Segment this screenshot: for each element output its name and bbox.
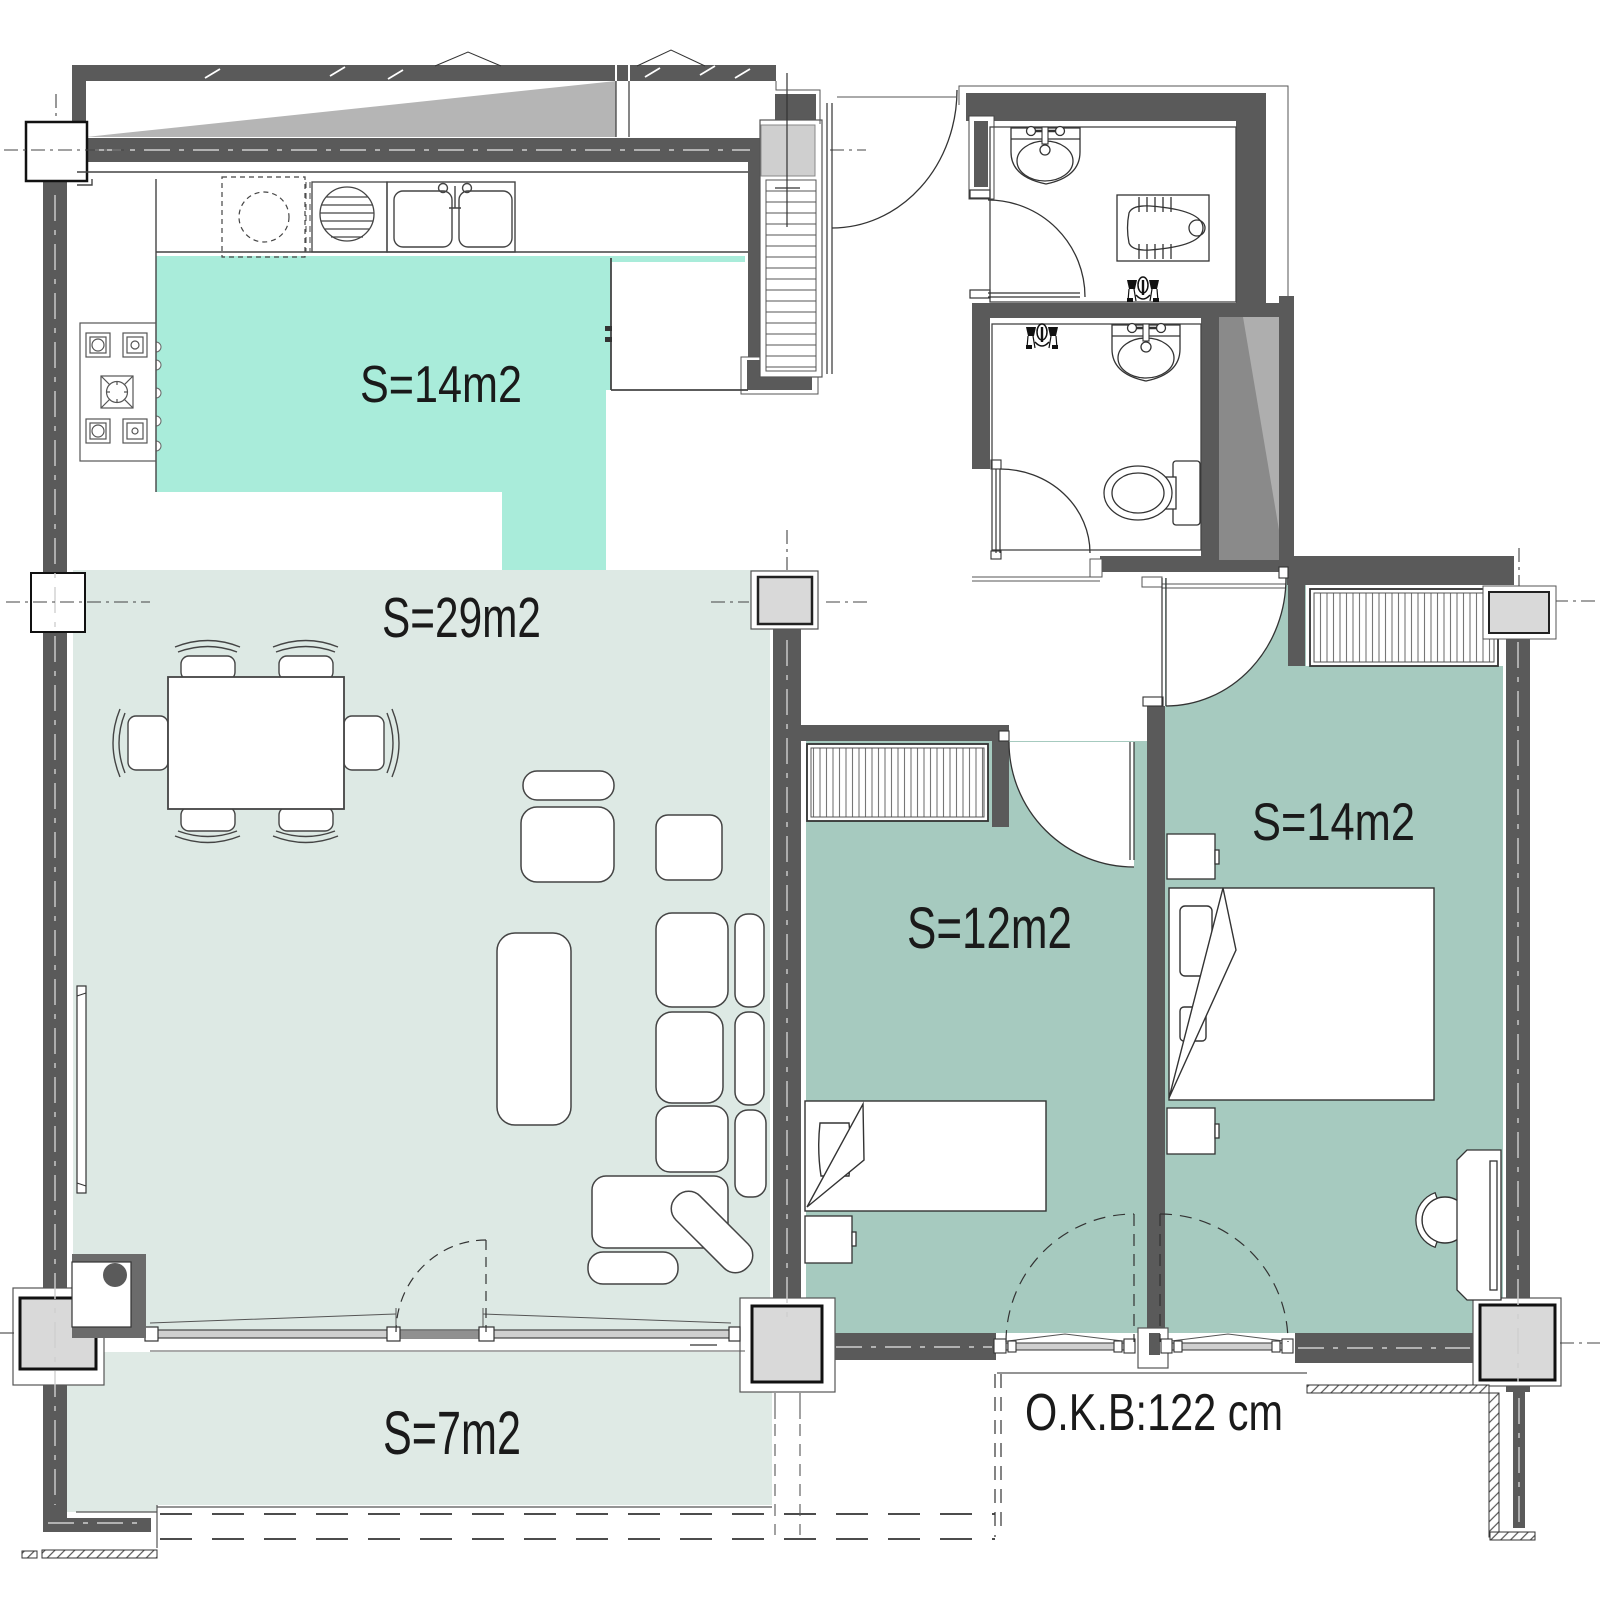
svg-text:S=14m2: S=14m2 [1252,793,1415,852]
svg-text:S=12m2: S=12m2 [907,896,1072,961]
svg-text:O.K.B:122 cm: O.K.B:122 cm [1025,1384,1283,1442]
svg-text:S=29m2: S=29m2 [382,586,541,650]
svg-text:S=14m2: S=14m2 [360,356,522,414]
svg-text:S=7m2: S=7m2 [383,1399,521,1467]
